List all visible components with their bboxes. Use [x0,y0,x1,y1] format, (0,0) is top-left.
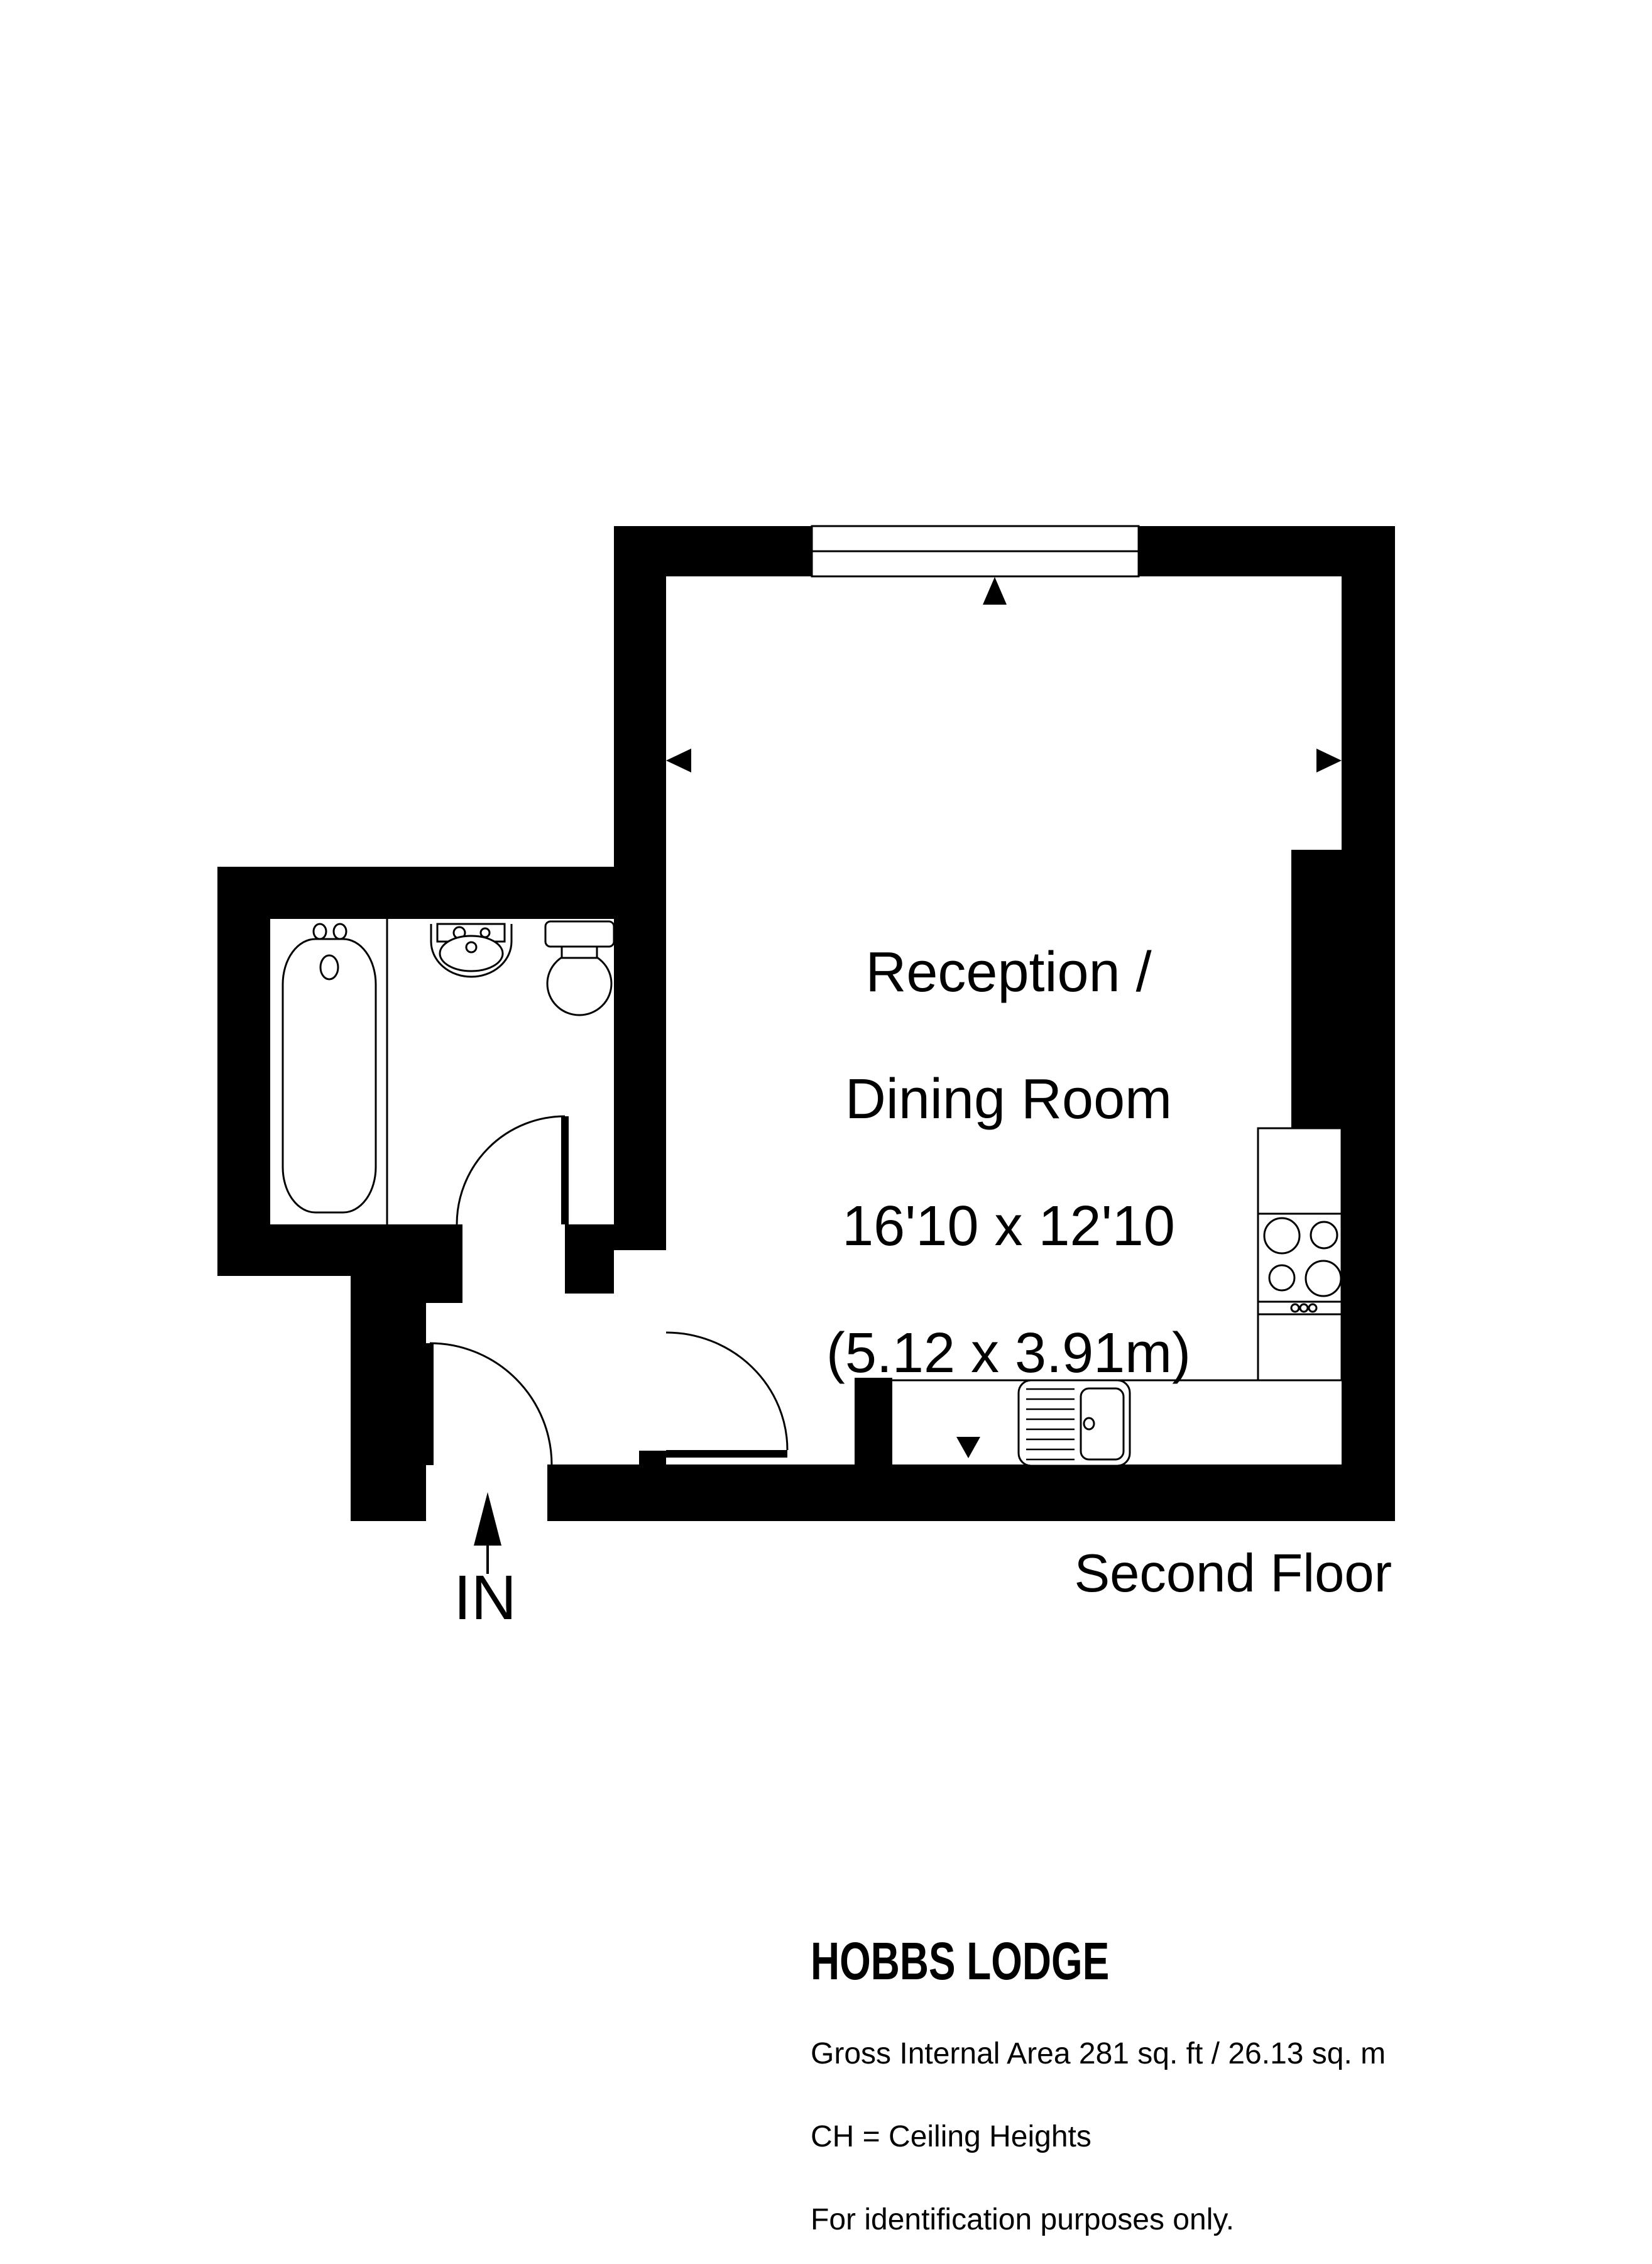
entrance-label: IN [407,1563,564,1632]
bath-tap-icon [334,924,346,939]
window [812,526,1139,576]
legend-line-identification: For identification purposes only. [811,2199,1646,2241]
dimension-arrow-left-icon [666,749,691,772]
wall-bathroom-top [217,867,666,919]
toilet-seat-hinge [562,947,597,958]
hob-knob-icon [1291,1304,1299,1312]
wall-bathroom-bottom-left [217,1224,462,1276]
reception-door-leaf [666,1450,787,1458]
basin-tap-icon [481,928,490,937]
basin-bowl [440,936,503,971]
room-name-line2: Dining Room [726,1068,1291,1131]
wall-doorway-stub [639,1451,666,1464]
legend-line-ch: CH = Ceiling Heights [811,2116,1646,2158]
hob-ring-icon [1306,1261,1341,1296]
wall-hall-step [426,1276,462,1303]
property-title: HOBBS LODGE [811,1934,1109,1988]
wall-bathroom-left [217,867,270,1276]
bath-tap-icon [314,924,326,939]
wall-bathroom-bottom-right [565,1224,614,1294]
hob-knob-icon [1300,1304,1308,1312]
hob-ring-icon [1311,1222,1337,1248]
wall-right [1342,526,1395,1521]
legend-block: HOBBS LODGE Gross Internal Area 281 sq. … [811,1923,1646,2264]
floor-label: Second Floor [826,1543,1392,1605]
entry-door-swing-arc [430,1343,552,1465]
entry-door-leaf [426,1343,434,1465]
hob-knob-icon [1309,1304,1316,1312]
bathroom-door-leaf [561,1116,569,1224]
toilet-bowl [547,952,611,1015]
dimension-arrow-right-icon [1316,749,1342,772]
wall-hall-left [351,1276,426,1521]
legend-line-area: Gross Internal Area 281 sq. ft / 26.13 s… [811,2033,1646,2075]
room-dimensions-imperial: 16'10 x 12'10 [726,1195,1291,1258]
wall-bottom [547,1464,1395,1521]
dimension-arrow-up-icon [983,577,1007,605]
basin-drain-icon [466,942,476,952]
room-label: Reception / Dining Room 16'10 x 12'10 (5… [726,877,1291,1449]
toilet-cistern [545,921,614,947]
legend-body: Gross Internal Area 281 sq. ft / 26.13 s… [811,1992,1646,2264]
entrance-arrow-icon [474,1492,501,1574]
floorplan-page: Reception / Dining Room 16'10 x 12'10 (5… [0,0,1652,2264]
room-dimensions-metric: (5.12 x 3.91m) [726,1322,1291,1385]
wall-right-pier [1291,850,1345,1129]
bath-drain-icon [320,955,338,979]
room-name-line1: Reception / [726,941,1291,1004]
bathroom-door-swing-arc [457,1116,565,1224]
